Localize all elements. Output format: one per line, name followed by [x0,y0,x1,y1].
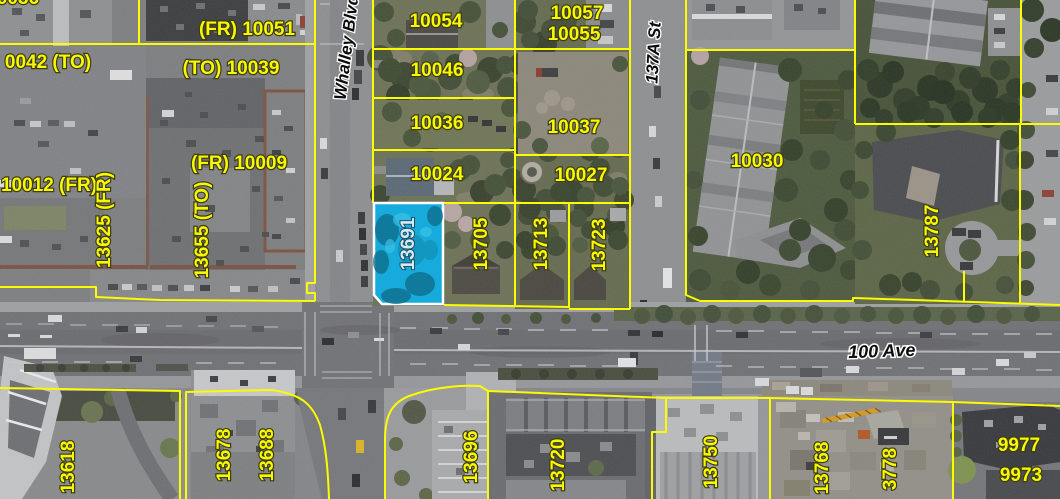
svg-text:10030: 10030 [731,151,784,172]
svg-text:9977: 9977 [998,435,1040,456]
svg-text:(FR) 10051: (FR) 10051 [199,19,296,40]
svg-text:13787: 13787 [922,205,943,258]
svg-text:13750: 13750 [701,436,722,489]
svg-text:10055: 10055 [548,24,601,45]
svg-text:100 Ave: 100 Ave [848,340,916,362]
svg-text:0042 (TO): 0042 (TO) [5,52,91,73]
svg-text:13720: 13720 [548,439,569,492]
svg-text:13705: 13705 [471,217,492,270]
svg-text:137A St: 137A St [642,20,664,84]
svg-text:10057: 10057 [551,3,604,24]
svg-text:13768: 13768 [812,442,833,495]
svg-text:10054: 10054 [410,11,463,32]
svg-text:9973: 9973 [1000,465,1042,486]
svg-text:(FR) 10009: (FR) 10009 [191,153,287,174]
svg-text:13655 (TO): 13655 (TO) [192,182,213,279]
svg-text:10036: 10036 [411,113,464,134]
svg-text:0036: 0036 [0,0,39,9]
svg-text:13696: 13696 [461,431,482,484]
svg-text:3778: 3778 [880,448,901,490]
svg-text:13713: 13713 [531,218,552,271]
svg-text:10027: 10027 [555,165,608,186]
svg-text:10024: 10024 [411,164,464,185]
svg-text:10012 (FR): 10012 (FR) [1,175,97,196]
svg-text:13723: 13723 [589,219,610,272]
svg-text:10037: 10037 [548,117,601,138]
svg-text:13688: 13688 [257,429,278,482]
svg-text:13678: 13678 [214,429,235,482]
svg-text:13691: 13691 [398,217,419,270]
svg-text:10046: 10046 [411,60,464,81]
svg-text:(TO) 10039: (TO) 10039 [183,58,280,79]
svg-text:13618: 13618 [58,441,79,494]
svg-text:13625 (FR): 13625 (FR) [94,172,115,268]
